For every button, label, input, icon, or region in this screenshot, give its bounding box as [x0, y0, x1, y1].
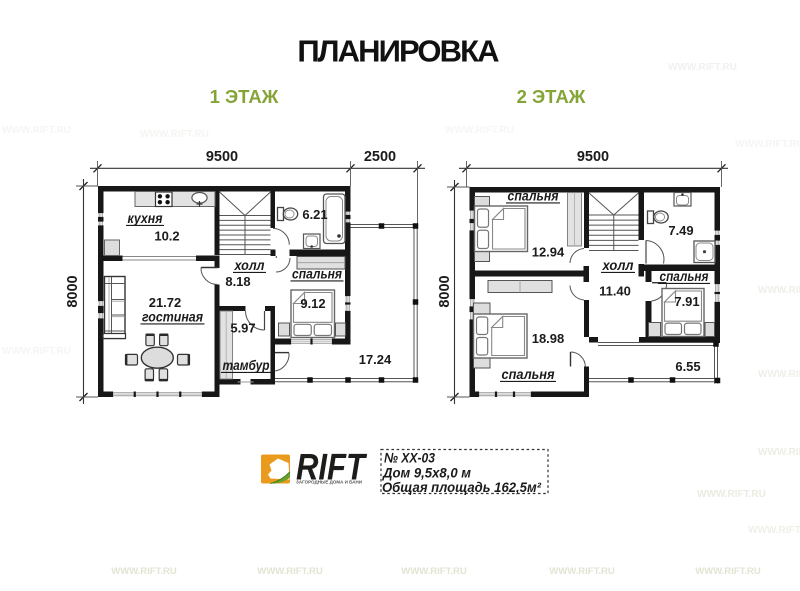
svg-text:7.49: 7.49 [668, 223, 693, 238]
svg-text:WWW.RIFT.RU: WWW.RIFT.RU [697, 489, 766, 500]
svg-text:8.18: 8.18 [225, 274, 250, 289]
svg-text:WWW.RIFT.RU: WWW.RIFT.RU [549, 566, 615, 577]
svg-text:WWW.RIFT.RU: WWW.RIFT.RU [257, 566, 323, 577]
svg-text:6.21: 6.21 [302, 207, 327, 222]
svg-text:спальня: спальня [502, 367, 555, 382]
svg-text:12.94: 12.94 [532, 245, 565, 260]
svg-text:18.98: 18.98 [532, 331, 565, 346]
svg-text:6.55: 6.55 [675, 359, 700, 374]
svg-text:2 ЭТАЖ: 2 ЭТАЖ [517, 86, 586, 107]
svg-text:WWW.RIFT.RU: WWW.RIFT.RU [758, 447, 800, 458]
svg-text:21.72: 21.72 [149, 295, 182, 310]
svg-text:9500: 9500 [577, 149, 609, 165]
svg-text:WWW.RIFT.RU: WWW.RIFT.RU [695, 566, 761, 577]
svg-text:WWW.RIFT.RU: WWW.RIFT.RU [445, 125, 514, 136]
svg-text:7.91: 7.91 [674, 294, 699, 309]
svg-text:кухня: кухня [128, 211, 163, 226]
svg-text:1 ЭТАЖ: 1 ЭТАЖ [210, 86, 279, 107]
svg-text:ЗАГОРОДНЫЕ ДОМА И БАНИ: ЗАГОРОДНЫЕ ДОМА И БАНИ [296, 480, 362, 485]
svg-text:гостиная: гостиная [142, 310, 203, 325]
svg-text:холл: холл [602, 258, 635, 273]
svg-text:№ ХХ-03: № ХХ-03 [384, 450, 435, 466]
svg-text:WWW.RIFT.RU: WWW.RIFT.RU [758, 369, 800, 380]
svg-text:тамбур: тамбур [223, 358, 270, 373]
svg-text:WWW.RIFT.RU: WWW.RIFT.RU [748, 525, 800, 536]
svg-text:холл: холл [234, 258, 265, 273]
svg-text:WWW.RIFT.RU: WWW.RIFT.RU [668, 62, 737, 73]
svg-text:ПЛАНИРОВКА: ПЛАНИРОВКА [297, 34, 499, 69]
svg-text:спальня: спальня [660, 269, 709, 284]
svg-text:11.40: 11.40 [599, 284, 631, 299]
svg-text:WWW.RIFT.RU: WWW.RIFT.RU [401, 566, 467, 577]
svg-text:17.24: 17.24 [359, 352, 392, 367]
svg-text:WWW.RIFT.RU: WWW.RIFT.RU [111, 566, 177, 577]
svg-text:8000: 8000 [437, 275, 453, 307]
svg-text:WWW.RIFT.RU: WWW.RIFT.RU [2, 346, 71, 357]
svg-text:2500: 2500 [364, 149, 396, 165]
svg-text:9.12: 9.12 [300, 296, 325, 311]
svg-text:WWW.RIFT.RU: WWW.RIFT.RU [758, 285, 800, 296]
svg-text:5.97: 5.97 [230, 321, 255, 336]
svg-text:спальня: спальня [292, 267, 342, 282]
svg-text:WWW.RIFT.RU: WWW.RIFT.RU [2, 125, 71, 136]
svg-text:9500: 9500 [206, 149, 238, 165]
svg-text:WWW.RIFT.RU: WWW.RIFT.RU [140, 129, 209, 140]
svg-text:Общая площадь 162,5м²: Общая площадь 162,5м² [382, 479, 541, 495]
svg-text:WWW.RIFT.RU: WWW.RIFT.RU [735, 139, 800, 150]
svg-text:8000: 8000 [65, 275, 81, 307]
svg-text:10.2: 10.2 [154, 229, 179, 244]
svg-text:спальня: спальня [508, 189, 559, 204]
